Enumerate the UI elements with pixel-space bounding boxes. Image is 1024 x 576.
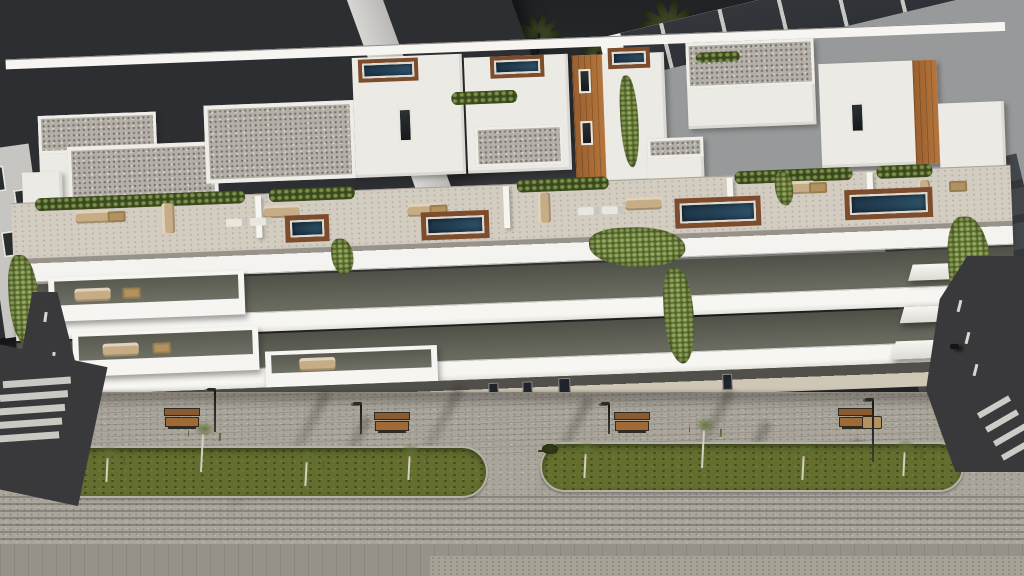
green-roof-strip bbox=[451, 90, 517, 106]
terrace-sofa bbox=[102, 342, 138, 356]
window bbox=[578, 69, 591, 93]
terrace-pool bbox=[426, 215, 485, 235]
terrace-table bbox=[152, 342, 170, 354]
terrace-table bbox=[122, 287, 140, 299]
glass-door bbox=[850, 102, 865, 133]
lane-dash bbox=[957, 300, 963, 312]
protruding-terrace bbox=[48, 270, 246, 321]
green-roof-strip bbox=[696, 51, 740, 63]
entrance-door bbox=[722, 374, 733, 390]
street-tree bbox=[583, 454, 586, 478]
sun-lounger bbox=[602, 206, 624, 215]
street-tree bbox=[105, 458, 108, 482]
terrace-sofa bbox=[75, 209, 111, 223]
planted-median-right bbox=[540, 442, 964, 492]
terrace-recess bbox=[271, 349, 432, 373]
lamppost bbox=[872, 400, 874, 462]
window bbox=[580, 121, 593, 145]
terrace-table bbox=[809, 182, 827, 194]
architectural-render-scene bbox=[0, 0, 1024, 576]
paved-promenade bbox=[0, 392, 1024, 576]
gravel-roof bbox=[203, 100, 356, 184]
paving-accent-strip bbox=[430, 556, 1024, 576]
terrace-pool bbox=[849, 192, 928, 215]
sun-lounger bbox=[250, 217, 272, 226]
terrace-table bbox=[949, 181, 967, 193]
gravel-roof bbox=[474, 124, 563, 167]
terrace-sofa bbox=[74, 287, 110, 301]
glass-door bbox=[398, 108, 413, 143]
street-tree bbox=[701, 430, 705, 468]
terrace-pool bbox=[290, 219, 325, 237]
rooftop-lap-pool bbox=[494, 59, 541, 75]
park-bench bbox=[164, 408, 198, 430]
terrace-sofa bbox=[299, 357, 335, 371]
gravel-roof bbox=[647, 137, 704, 159]
terrace-table bbox=[107, 211, 125, 223]
terrace-sofa bbox=[537, 193, 551, 223]
lane-dash bbox=[973, 364, 979, 376]
lamppost bbox=[608, 404, 610, 434]
lamppost bbox=[214, 390, 216, 432]
street-tree bbox=[903, 452, 906, 476]
rooftop-lap-pool bbox=[362, 62, 415, 79]
street-tree bbox=[200, 434, 204, 472]
gravel-roof bbox=[685, 38, 815, 89]
terrace-hedge bbox=[876, 164, 932, 179]
main-apartment-building bbox=[5, 15, 1018, 423]
rooftop-lap-pool bbox=[612, 51, 646, 65]
parked-scooter bbox=[950, 344, 959, 349]
paver-rows-lower bbox=[0, 496, 1024, 544]
planted-median-left bbox=[52, 446, 488, 498]
sun-lounger bbox=[578, 207, 600, 216]
terrace-table bbox=[429, 204, 447, 216]
street-tree bbox=[304, 462, 307, 486]
terrace-sofa bbox=[625, 196, 661, 210]
lane-dash bbox=[965, 332, 971, 344]
street-tree bbox=[408, 456, 411, 480]
lamppost bbox=[360, 404, 362, 434]
park-bench bbox=[374, 412, 408, 434]
terrace-sofa bbox=[161, 203, 175, 233]
terrace-pool bbox=[680, 201, 757, 224]
penthouse-volume bbox=[818, 60, 940, 168]
sun-lounger bbox=[226, 218, 248, 227]
park-bench bbox=[614, 412, 648, 434]
street-tree bbox=[802, 456, 805, 480]
timber-clad-wall bbox=[912, 60, 940, 165]
